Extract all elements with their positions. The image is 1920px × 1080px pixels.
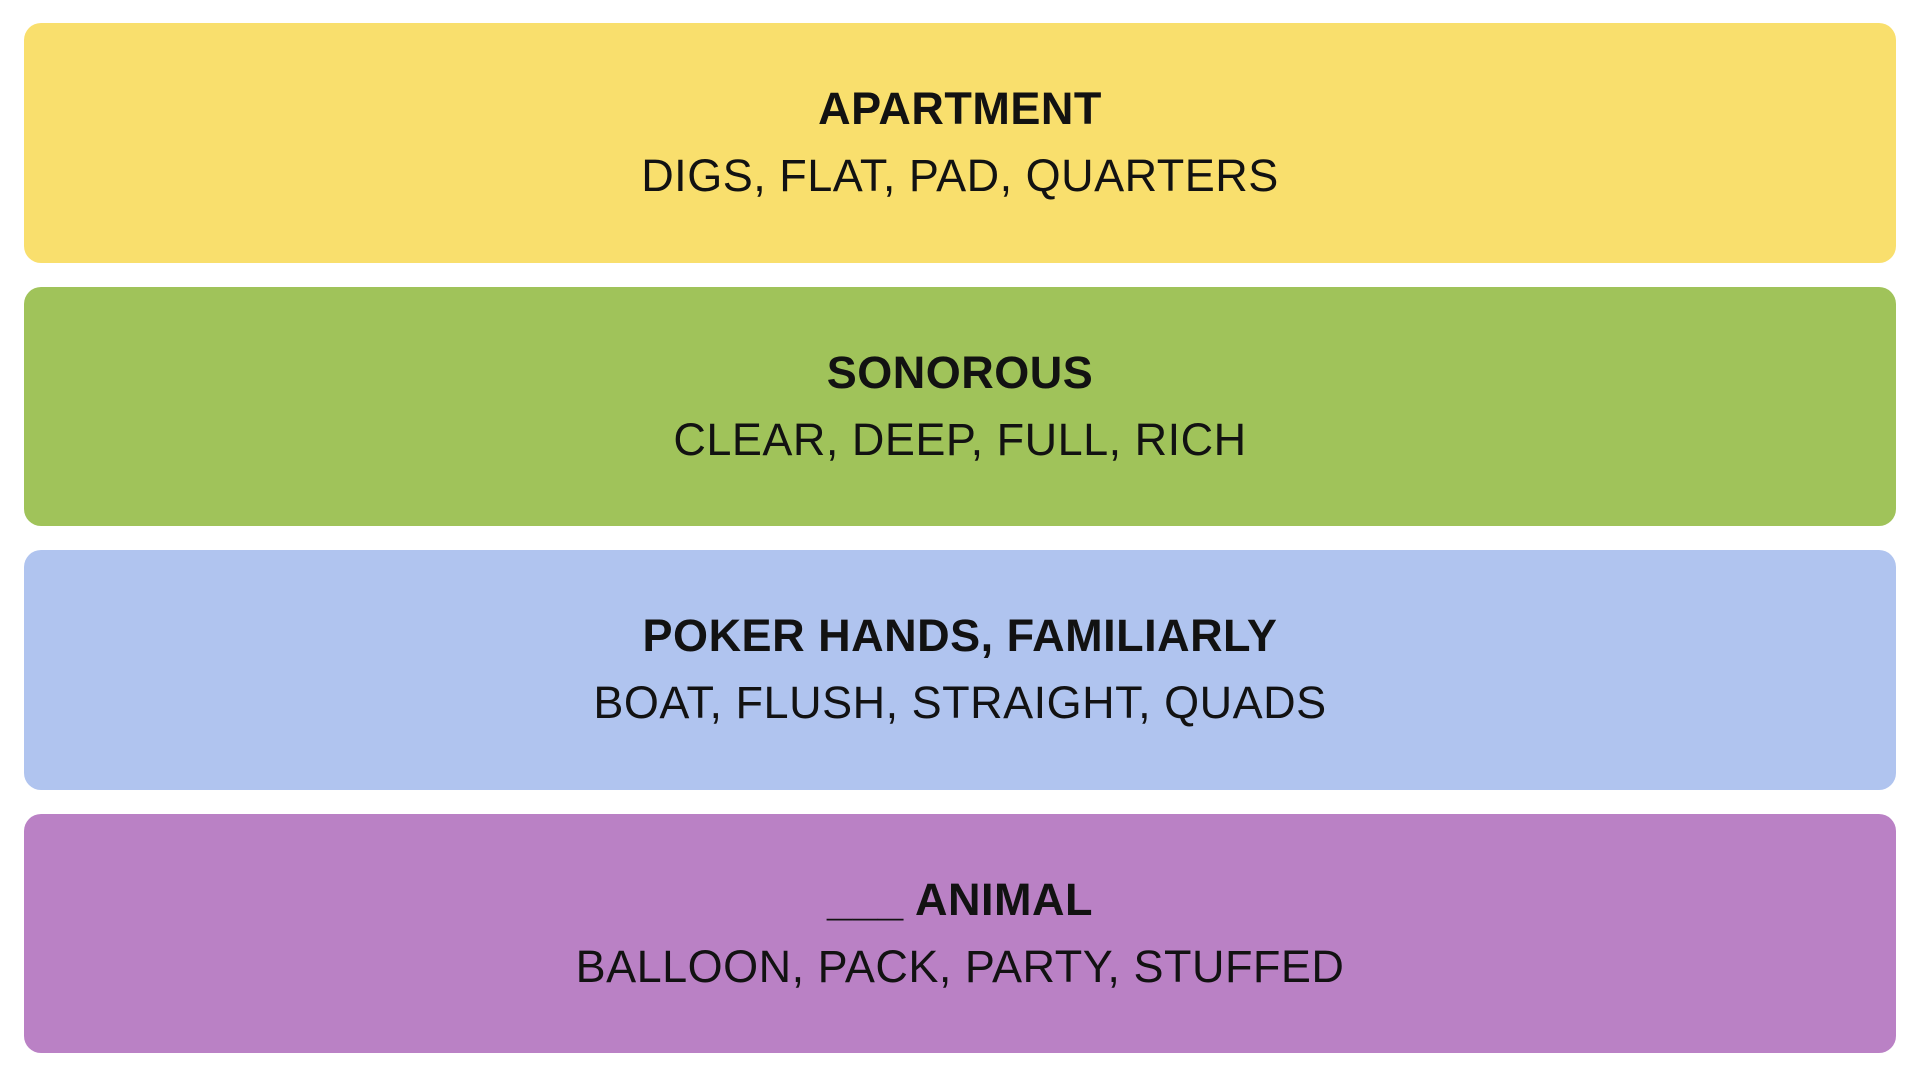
group-title-purple: ___ ANIMAL [827, 871, 1093, 929]
group-title-yellow: APARTMENT [818, 80, 1102, 138]
group-words-purple: BALLOON, PACK, PARTY, STUFFED [576, 938, 1345, 996]
group-card-yellow: APARTMENT DIGS, FLAT, PAD, QUARTERS [24, 23, 1896, 263]
group-card-purple: ___ ANIMAL BALLOON, PACK, PARTY, STUFFED [24, 814, 1896, 1054]
group-words-yellow: DIGS, FLAT, PAD, QUARTERS [641, 147, 1279, 205]
connections-results-board: APARTMENT DIGS, FLAT, PAD, QUARTERS SONO… [0, 0, 1920, 1080]
group-words-green: CLEAR, DEEP, FULL, RICH [673, 411, 1246, 469]
group-words-blue: BOAT, FLUSH, STRAIGHT, QUADS [593, 674, 1326, 732]
group-title-green: SONOROUS [827, 344, 1094, 402]
group-title-blue: POKER HANDS, FAMILIARLY [643, 607, 1278, 665]
group-card-green: SONOROUS CLEAR, DEEP, FULL, RICH [24, 287, 1896, 527]
group-card-blue: POKER HANDS, FAMILIARLY BOAT, FLUSH, STR… [24, 550, 1896, 790]
